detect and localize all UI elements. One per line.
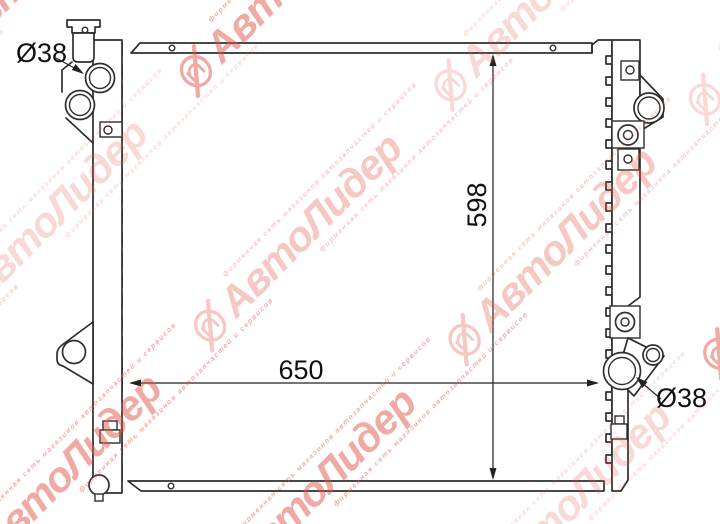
left-fitting-stem: [103, 421, 117, 430]
left-fitting-body: [100, 430, 120, 443]
height-arrow-down: [490, 468, 497, 480]
radiator-technical-drawing: 598 650 Ø38 Ø38: [0, 0, 720, 524]
height-dimension: 598: [462, 54, 496, 480]
right-fitting-stem: [615, 416, 624, 424]
right-bracket-d-ring: [616, 313, 635, 332]
right-bracket-c: [618, 149, 639, 170]
radiator-drawing-page: 598 650 Ø38 Ø38 фирменная сеть магазинов…: [0, 0, 720, 524]
right-fitting-body: [611, 424, 627, 439]
left-tank-gusset: [66, 118, 93, 143]
height-dimension-label: 598: [462, 182, 492, 227]
right-tank: [592, 40, 664, 491]
right-bracket-a: [621, 61, 639, 80]
width-arrow-right: [587, 380, 599, 387]
left-mount-ear-hole: [63, 341, 86, 364]
top-callout-arrow: [72, 64, 84, 74]
core-bottom-band: [128, 481, 604, 491]
drain-plug: [89, 475, 109, 495]
cap-flange: [67, 20, 100, 33]
width-dimension-label: 650: [278, 355, 323, 385]
cap-neck: [73, 33, 94, 62]
bottom-pipe-diameter-label: Ø38: [656, 383, 707, 413]
core-right-serrated-edge: [606, 43, 612, 481]
width-arrow-left: [129, 380, 141, 387]
left-tank: [57, 20, 122, 501]
drain-plug-stem: [95, 494, 103, 501]
top-pipe-diameter-label: Ø38: [16, 38, 67, 68]
bottom-pipe-diameter-callout: Ø38: [636, 377, 707, 413]
width-dimension: 650: [129, 355, 599, 387]
right-tank-top-step: [592, 40, 612, 53]
core-top-band: [131, 43, 592, 53]
height-arrow-up: [490, 54, 497, 66]
right-bracket-b-ring: [618, 125, 638, 145]
radiator-core: [116, 43, 612, 491]
left-upper-bracket: [100, 122, 122, 137]
